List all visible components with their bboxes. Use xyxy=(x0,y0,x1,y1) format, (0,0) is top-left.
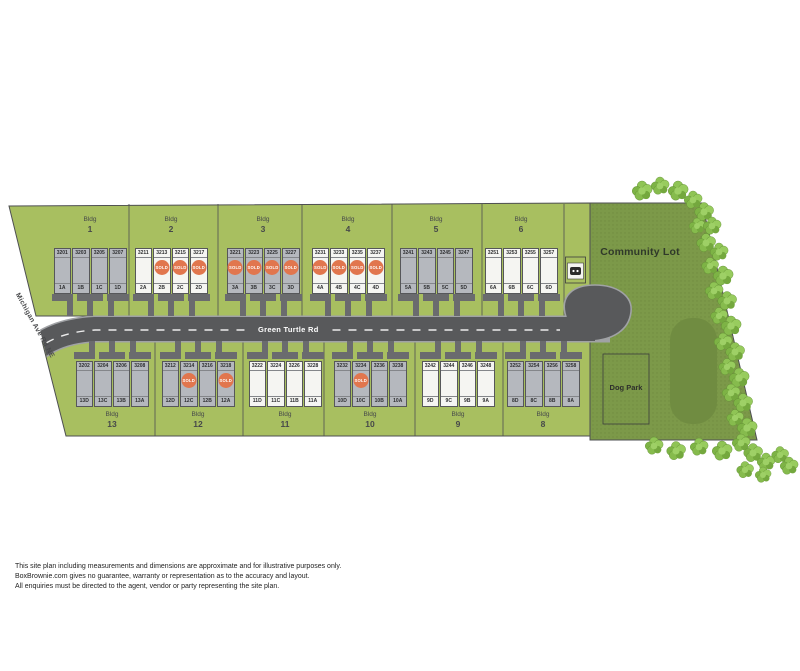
building-label: Bldg4 xyxy=(341,216,354,238)
road-label: Green Turtle Rd xyxy=(249,324,328,335)
unit-number: 3246 xyxy=(460,362,476,371)
unit-letter: 6B xyxy=(504,283,520,293)
unit-number: 3213 xyxy=(154,249,170,258)
unit-letter: 4C xyxy=(350,283,366,293)
building-label-prefix: Bldg xyxy=(191,411,204,419)
unit-row: 320213D320413C320613B320813A xyxy=(76,361,149,407)
unit-number: 3224 xyxy=(268,362,284,371)
unit-number: 3243 xyxy=(419,249,435,258)
unit-letter: 2D xyxy=(191,283,207,293)
unit-letter: 10D xyxy=(335,396,351,406)
unit-letter: 4A xyxy=(313,283,329,293)
unit-8D: 32528D xyxy=(507,361,525,407)
unit-letter: 6C xyxy=(523,283,539,293)
unit-number: 3201 xyxy=(55,249,71,258)
unit-12A: 3218SOLD12A xyxy=(217,361,235,407)
sold-badge: SOLD xyxy=(353,373,368,388)
unit-number: 3207 xyxy=(110,249,126,258)
unit-8A: 32588A xyxy=(562,361,580,407)
community-lot-label: Community Lot xyxy=(596,246,684,258)
unit-4A: 3231SOLD4A xyxy=(312,248,330,294)
unit-number: 3208 xyxy=(132,362,148,371)
building-label: Bldg1 xyxy=(83,216,96,238)
garage-strip xyxy=(505,352,582,359)
building-number: 5 xyxy=(429,224,442,235)
unit-number: 3225 xyxy=(265,249,281,258)
building-number: 11 xyxy=(278,419,291,430)
unit-number: 3236 xyxy=(372,362,388,371)
unit-5A: 32415A xyxy=(400,248,418,294)
unit-number: 3254 xyxy=(526,362,542,371)
building-lot-8: 32528D32548C32568B32588ABldg8 xyxy=(503,341,583,433)
unit-number: 3216 xyxy=(200,362,216,371)
sold-badge: SOLD xyxy=(368,260,383,275)
driveway-stubs xyxy=(160,341,237,352)
sold-badge: SOLD xyxy=(228,260,243,275)
garage-strip xyxy=(74,352,151,359)
tree-icon xyxy=(632,181,652,200)
building-label-prefix: Bldg xyxy=(105,411,118,419)
unit-letter: 4B xyxy=(331,283,347,293)
garage-strip xyxy=(52,294,129,301)
unit-letter: 9D xyxy=(423,396,439,406)
disclaimer-line: All enquiries must be directed to the ag… xyxy=(15,582,341,592)
driveway-stubs xyxy=(483,301,560,316)
garage-strip xyxy=(332,352,409,359)
unit-number: 3227 xyxy=(283,249,299,258)
disclaimer: This site plan including measurements an… xyxy=(15,562,341,592)
unit-5D: 32475D xyxy=(455,248,473,294)
unit-letter: 13D xyxy=(77,396,93,406)
building-label-prefix: Bldg xyxy=(363,411,376,419)
unit-row: 32429D32449C32469B32489A xyxy=(422,361,495,407)
unit-letter: 1D xyxy=(110,283,126,293)
unit-letter: 8C xyxy=(526,396,542,406)
unit-letter: 9C xyxy=(441,396,457,406)
sold-badge: SOLD xyxy=(283,260,298,275)
building-label-prefix: Bldg xyxy=(83,216,96,224)
building-number: 6 xyxy=(514,224,527,235)
unit-number: 3242 xyxy=(423,362,439,371)
garage-strip xyxy=(225,294,302,301)
unit-13A: 320813A xyxy=(131,361,149,407)
unit-number: 3255 xyxy=(523,249,539,258)
unit-letter: 12A xyxy=(218,396,234,406)
unit-letter: 10C xyxy=(353,396,369,406)
unit-number: 3226 xyxy=(287,362,303,371)
unit-row: 321212D3214SOLD12C321612B3218SOLD12A xyxy=(162,361,235,407)
unit-number: 3244 xyxy=(441,362,457,371)
garage-strip xyxy=(133,294,210,301)
unit-12C: 3214SOLD12C xyxy=(180,361,198,407)
driveway-stubs xyxy=(398,301,475,316)
unit-row: 32112A3213SOLD2B3215SOLD2C3217SOLD2D xyxy=(135,248,208,294)
unit-number: 3206 xyxy=(114,362,130,371)
building-lot-5: Bldg532415A32435B32455C32475D xyxy=(396,203,476,316)
unit-10D: 323210D xyxy=(334,361,352,407)
building-label: Bldg8 xyxy=(536,411,549,433)
disclaimer-line: This site plan including measurements an… xyxy=(15,562,341,572)
unit-2A: 32112A xyxy=(135,248,153,294)
building-label: Bldg2 xyxy=(164,216,177,238)
unit-letter: 8D xyxy=(508,396,524,406)
unit-number: 3245 xyxy=(438,249,454,258)
unit-10C: 3234SOLD10C xyxy=(352,361,370,407)
unit-11B: 322611B xyxy=(286,361,304,407)
unit-13B: 320613B xyxy=(113,361,131,407)
building-number: 1 xyxy=(83,224,96,235)
tree-icon xyxy=(712,441,732,460)
unit-row: 32011A32031B32051C32071D xyxy=(54,248,127,294)
unit-number: 3241 xyxy=(401,249,417,258)
building-lot-3: Bldg33221SOLD3A3223SOLD3B3225SOLD3C3227S… xyxy=(223,203,303,316)
building-label-prefix: Bldg xyxy=(164,216,177,224)
unit-letter: 11A xyxy=(305,396,321,406)
unit-letter: 8B xyxy=(545,396,561,406)
unit-number: 3234 xyxy=(353,362,369,371)
unit-letter: 11B xyxy=(287,396,303,406)
unit-letter: 4D xyxy=(368,283,384,293)
building-label: Bldg11 xyxy=(278,411,291,433)
tree-icon xyxy=(737,461,754,477)
unit-letter: 3C xyxy=(265,283,281,293)
pond-shape xyxy=(670,318,717,424)
unit-letter: 5B xyxy=(419,283,435,293)
unit-letter: 11D xyxy=(250,396,266,406)
unit-11C: 322411C xyxy=(267,361,285,407)
unit-6D: 32576D xyxy=(540,248,558,294)
building-number: 2 xyxy=(164,224,177,235)
building-number: 8 xyxy=(536,419,549,430)
unit-row: 3231SOLD4A3233SOLD4B3235SOLD4C3237SOLD4D xyxy=(312,248,385,294)
driveway-stubs xyxy=(74,341,151,352)
unit-letter: 9A xyxy=(478,396,494,406)
unit-number: 3232 xyxy=(335,362,351,371)
sold-badge: SOLD xyxy=(154,260,169,275)
building-lot-10: 323210D3234SOLD10C323610B323810ABldg10 xyxy=(330,341,410,433)
unit-row: 3221SOLD3A3223SOLD3B3225SOLD3C3227SOLD3D xyxy=(227,248,300,294)
unit-number: 3203 xyxy=(73,249,89,258)
unit-letter: 11C xyxy=(268,396,284,406)
unit-number: 3215 xyxy=(173,249,189,258)
unit-number: 3233 xyxy=(331,249,347,258)
building-lot-1: Bldg132011A32031B32051C32071D xyxy=(50,203,130,316)
unit-1D: 32071D xyxy=(109,248,127,294)
building-lot-13: 320213D320413C320613B320813ABldg13 xyxy=(72,341,152,433)
unit-number: 3223 xyxy=(246,249,262,258)
unit-6A: 32516A xyxy=(485,248,503,294)
building-lot-6: Bldg632516A32536B32556C32576D xyxy=(481,203,561,316)
building-lot-9: 32429D32449C32469B32489ABldg9 xyxy=(418,341,498,433)
unit-number: 3228 xyxy=(305,362,321,371)
unit-number: 3256 xyxy=(545,362,561,371)
sold-badge: SOLD xyxy=(173,260,188,275)
disclaimer-line: BoxBrownie.com gives no guarantee, warra… xyxy=(15,572,341,582)
building-label-prefix: Bldg xyxy=(514,216,527,224)
unit-9B: 32469B xyxy=(459,361,477,407)
unit-letter: 13B xyxy=(114,396,130,406)
sold-badge: SOLD xyxy=(191,260,206,275)
garage-strip xyxy=(483,294,560,301)
unit-6B: 32536B xyxy=(503,248,521,294)
sold-badge: SOLD xyxy=(313,260,328,275)
building-label-prefix: Bldg xyxy=(429,216,442,224)
unit-letter: 1C xyxy=(92,283,108,293)
garage-strip xyxy=(247,352,324,359)
garage-strip xyxy=(398,294,475,301)
sold-badge: SOLD xyxy=(181,373,196,388)
unit-number: 3248 xyxy=(478,362,494,371)
driveway-stubs xyxy=(420,341,497,352)
sold-badge: SOLD xyxy=(265,260,280,275)
unit-row: 32528D32548C32568B32588A xyxy=(507,361,580,407)
sold-badge: SOLD xyxy=(218,373,233,388)
unit-number: 3222 xyxy=(250,362,266,371)
unit-3A: 3221SOLD3A xyxy=(227,248,245,294)
unit-letter: 13A xyxy=(132,396,148,406)
unit-number: 3235 xyxy=(350,249,366,258)
unit-number: 3247 xyxy=(456,249,472,258)
building-label-prefix: Bldg xyxy=(536,411,549,419)
unit-number: 3202 xyxy=(77,362,93,371)
unit-11A: 322811A xyxy=(304,361,322,407)
unit-1B: 32031B xyxy=(72,248,90,294)
unit-letter: 6D xyxy=(541,283,557,293)
building-lot-11: 322211D322411C322611B322811ABldg11 xyxy=(245,341,325,433)
unit-number: 3258 xyxy=(563,362,579,371)
unit-3C: 3225SOLD3C xyxy=(264,248,282,294)
unit-letter: 10A xyxy=(390,396,406,406)
garage-strip xyxy=(160,352,237,359)
unit-letter: 5A xyxy=(401,283,417,293)
unit-letter: 3B xyxy=(246,283,262,293)
unit-row: 323210D3234SOLD10C323610B323810A xyxy=(334,361,407,407)
unit-8C: 32548C xyxy=(525,361,543,407)
building-label: Bldg12 xyxy=(191,411,204,433)
building-label-prefix: Bldg xyxy=(451,411,464,419)
unit-number: 3221 xyxy=(228,249,244,258)
unit-letter: 9B xyxy=(460,396,476,406)
site-plan: Bldg132011A32031B32051C32071DBldg232112A… xyxy=(0,0,800,671)
unit-number: 3257 xyxy=(541,249,557,258)
unit-1A: 32011A xyxy=(54,248,72,294)
unit-letter: 1A xyxy=(55,283,71,293)
building-label: Bldg10 xyxy=(363,411,376,433)
unit-2C: 3215SOLD2C xyxy=(172,248,190,294)
building-lot-4: Bldg43231SOLD4A3233SOLD4B3235SOLD4C3237S… xyxy=(308,203,388,316)
unit-3D: 3227SOLD3D xyxy=(282,248,300,294)
driveway-stubs xyxy=(247,341,324,352)
building-number: 4 xyxy=(341,224,354,235)
unit-letter: 12B xyxy=(200,396,216,406)
unit-number: 3231 xyxy=(313,249,329,258)
sold-badge: SOLD xyxy=(331,260,346,275)
unit-4C: 3235SOLD4C xyxy=(349,248,367,294)
unit-5C: 32455C xyxy=(437,248,455,294)
unit-number: 3204 xyxy=(95,362,111,371)
unit-letter: 12C xyxy=(181,396,197,406)
unit-letter: 10B xyxy=(372,396,388,406)
driveway-stubs xyxy=(225,301,302,316)
building-label-prefix: Bldg xyxy=(256,216,269,224)
building-label: Bldg3 xyxy=(256,216,269,238)
unit-letter: 3A xyxy=(228,283,244,293)
unit-number: 3211 xyxy=(136,249,152,258)
driveway-stubs xyxy=(52,301,129,316)
unit-row: 322211D322411C322611B322811A xyxy=(249,361,322,407)
building-label-prefix: Bldg xyxy=(341,216,354,224)
building-label: Bldg13 xyxy=(105,411,118,433)
unit-12D: 321212D xyxy=(162,361,180,407)
building-number: 3 xyxy=(256,224,269,235)
building-number: 10 xyxy=(363,419,376,430)
unit-letter: 12D xyxy=(163,396,179,406)
unit-row: 32415A32435B32455C32475D xyxy=(400,248,473,294)
unit-number: 3212 xyxy=(163,362,179,371)
building-lot-12: 321212D3214SOLD12C321612B3218SOLD12ABldg… xyxy=(158,341,238,433)
building-label: Bldg5 xyxy=(429,216,442,238)
unit-8B: 32568B xyxy=(544,361,562,407)
unit-number: 3218 xyxy=(218,362,234,371)
building-number: 9 xyxy=(451,419,464,430)
unit-letter: 5C xyxy=(438,283,454,293)
unit-letter: 5D xyxy=(456,283,472,293)
tree-icon xyxy=(651,177,669,194)
unit-number: 3238 xyxy=(390,362,406,371)
unit-letter: 1B xyxy=(73,283,89,293)
unit-9C: 32449C xyxy=(440,361,458,407)
dog-park-label: Dog Park xyxy=(603,383,649,392)
sold-badge: SOLD xyxy=(350,260,365,275)
tree-icon xyxy=(667,441,686,459)
building-label: Bldg9 xyxy=(451,411,464,433)
unit-12B: 321612B xyxy=(199,361,217,407)
sold-badge: SOLD xyxy=(246,260,261,275)
unit-number: 3205 xyxy=(92,249,108,258)
unit-number: 3252 xyxy=(508,362,524,371)
unit-9D: 32429D xyxy=(422,361,440,407)
driveway-stubs xyxy=(133,301,210,316)
tree-icon xyxy=(755,467,771,482)
unit-10B: 323610B xyxy=(371,361,389,407)
garage-strip xyxy=(420,352,497,359)
unit-3B: 3223SOLD3B xyxy=(245,248,263,294)
unit-2D: 3217SOLD2D xyxy=(190,248,208,294)
building-label-prefix: Bldg xyxy=(278,411,291,419)
unit-10A: 323810A xyxy=(389,361,407,407)
unit-2B: 3213SOLD2B xyxy=(153,248,171,294)
unit-13D: 320213D xyxy=(76,361,94,407)
unit-letter: 13C xyxy=(95,396,111,406)
building-label: Bldg6 xyxy=(514,216,527,238)
garage-strip xyxy=(310,294,387,301)
unit-5B: 32435B xyxy=(418,248,436,294)
unit-number: 3217 xyxy=(191,249,207,258)
driveway-stubs xyxy=(310,301,387,316)
unit-number: 3251 xyxy=(486,249,502,258)
unit-letter: 2B xyxy=(154,283,170,293)
unit-number: 3237 xyxy=(368,249,384,258)
building-number: 13 xyxy=(105,419,118,430)
unit-letter: 2C xyxy=(173,283,189,293)
unit-letter: 3D xyxy=(283,283,299,293)
tree-icon xyxy=(690,438,708,455)
unit-row: 32516A32536B32556C32576D xyxy=(485,248,558,294)
unit-1C: 32051C xyxy=(91,248,109,294)
unit-4D: 3237SOLD4D xyxy=(367,248,385,294)
driveway-stubs xyxy=(505,341,582,352)
unit-number: 3253 xyxy=(504,249,520,258)
building-lot-2: Bldg232112A3213SOLD2B3215SOLD2C3217SOLD2… xyxy=(131,203,211,316)
unit-letter: 6A xyxy=(486,283,502,293)
unit-13C: 320413C xyxy=(94,361,112,407)
driveway-stubs xyxy=(332,341,409,352)
unit-4B: 3233SOLD4B xyxy=(330,248,348,294)
unit-11D: 322211D xyxy=(249,361,267,407)
building-number: 12 xyxy=(191,419,204,430)
unit-9A: 32489A xyxy=(477,361,495,407)
unit-6C: 32556C xyxy=(522,248,540,294)
unit-letter: 2A xyxy=(136,283,152,293)
unit-letter: 8A xyxy=(563,396,579,406)
unit-number: 3214 xyxy=(181,362,197,371)
